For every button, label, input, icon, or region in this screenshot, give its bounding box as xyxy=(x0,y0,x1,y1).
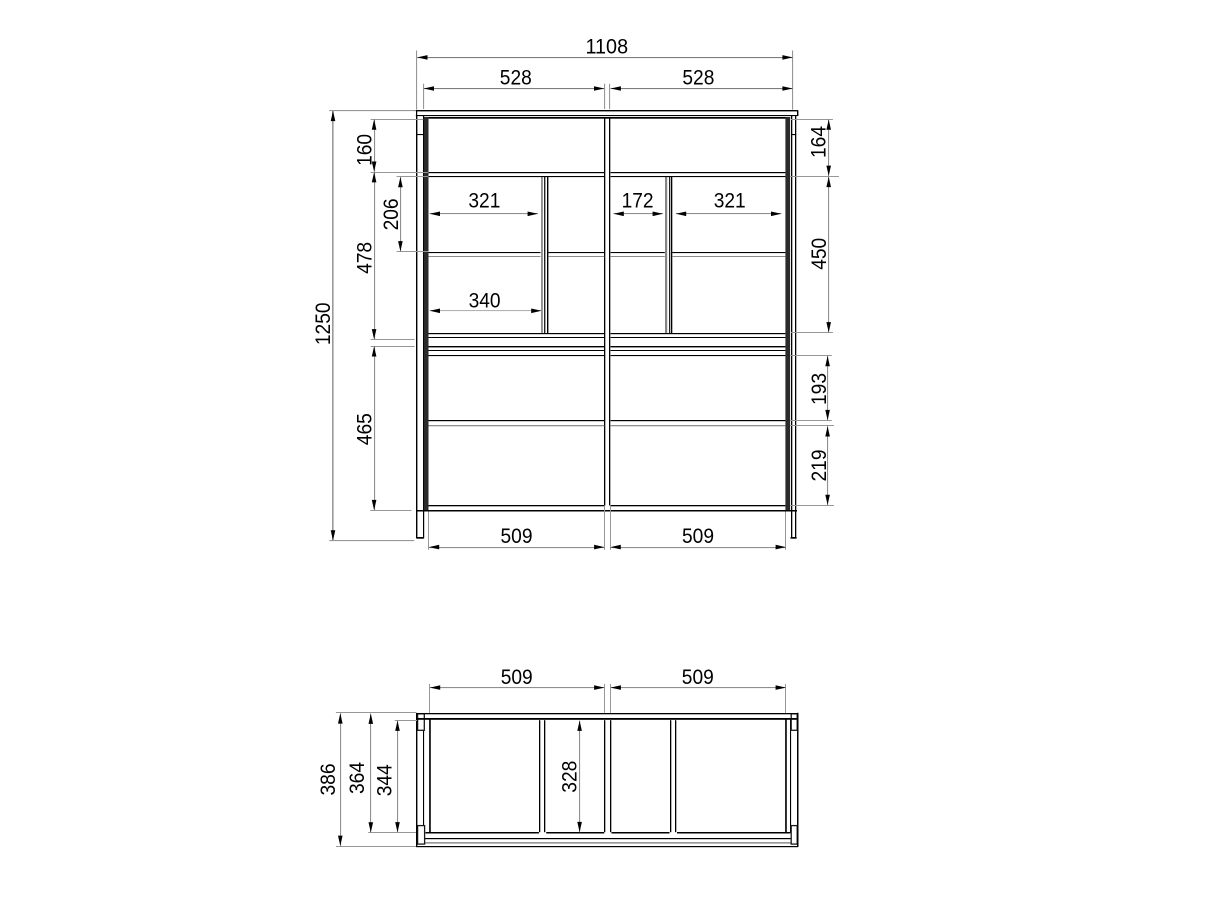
svg-text:160: 160 xyxy=(354,134,377,166)
svg-text:528: 528 xyxy=(500,66,532,89)
svg-text:193: 193 xyxy=(808,373,831,405)
svg-text:509: 509 xyxy=(682,666,714,689)
svg-text:172: 172 xyxy=(622,189,654,212)
svg-text:465: 465 xyxy=(353,413,376,445)
svg-text:219: 219 xyxy=(808,450,831,482)
svg-text:386: 386 xyxy=(317,764,340,796)
svg-text:364: 364 xyxy=(346,762,369,794)
svg-text:321: 321 xyxy=(468,189,500,212)
svg-text:478: 478 xyxy=(354,242,377,274)
svg-text:344: 344 xyxy=(373,764,396,796)
svg-text:528: 528 xyxy=(682,66,714,89)
svg-text:1108: 1108 xyxy=(586,35,629,58)
svg-text:328: 328 xyxy=(559,761,582,793)
svg-text:164: 164 xyxy=(808,126,831,158)
svg-text:1250: 1250 xyxy=(312,302,335,345)
svg-text:509: 509 xyxy=(501,525,533,548)
svg-text:450: 450 xyxy=(808,238,831,270)
svg-text:340: 340 xyxy=(469,290,501,313)
svg-text:509: 509 xyxy=(501,666,533,689)
svg-text:509: 509 xyxy=(682,525,714,548)
svg-text:206: 206 xyxy=(380,198,403,230)
svg-text:321: 321 xyxy=(714,189,746,212)
